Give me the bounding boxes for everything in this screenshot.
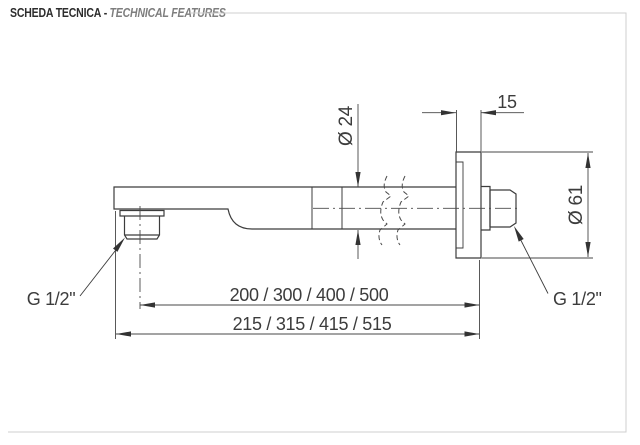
dim-24-arrow-top	[355, 172, 360, 187]
nozzle-body	[125, 216, 160, 239]
inlet-thread-leader-arrow	[514, 226, 524, 242]
break-line-left	[379, 176, 391, 245]
inlet-thread-leader	[521, 240, 549, 294]
outlet-thread-label: G 1/2"	[27, 289, 76, 309]
dim-61-arrow-bottom	[585, 242, 590, 257]
dim-overall-length-label: 215 / 315 / 415 / 515	[233, 314, 392, 334]
break-line-right	[397, 176, 409, 245]
technical-drawing: 15 Ø 24 Ø 61 200 / 300 / 400 / 500 215 /…	[0, 0, 640, 445]
dim-24-arrow-bottom	[355, 230, 360, 245]
dim-24-label: Ø 24	[336, 105, 357, 146]
outlet-thread-leader	[80, 249, 117, 297]
dim-arm-length-arrow-left	[140, 302, 155, 307]
dim-61-label: Ø 61	[566, 185, 587, 225]
technical-sheet: SCHEDA TECNICA-TECHNICAL FEATURES 15	[0, 0, 640, 445]
dim-15-arrow-right	[481, 110, 496, 115]
nozzle-ring	[120, 211, 164, 217]
dim-arm-length-arrow-right	[465, 302, 480, 307]
dim-arm-length-label: 200 / 300 / 400 / 500	[230, 285, 389, 305]
outlet-thread-leader-arrow	[113, 238, 125, 252]
dim-15-arrow-left	[441, 110, 456, 115]
wall-flange-step	[456, 162, 463, 248]
wall-flange	[456, 152, 481, 258]
inlet-thread-label: G 1/2"	[553, 289, 602, 309]
dim-overall-length-arrow-left	[116, 331, 131, 336]
dim-15-label: 15	[497, 92, 517, 112]
sheet-frame	[8, 13, 626, 432]
dim-61-arrow-top	[585, 153, 590, 168]
dim-15-extension-lines	[457, 110, 482, 152]
dim-overall-length-arrow-right	[465, 331, 480, 336]
